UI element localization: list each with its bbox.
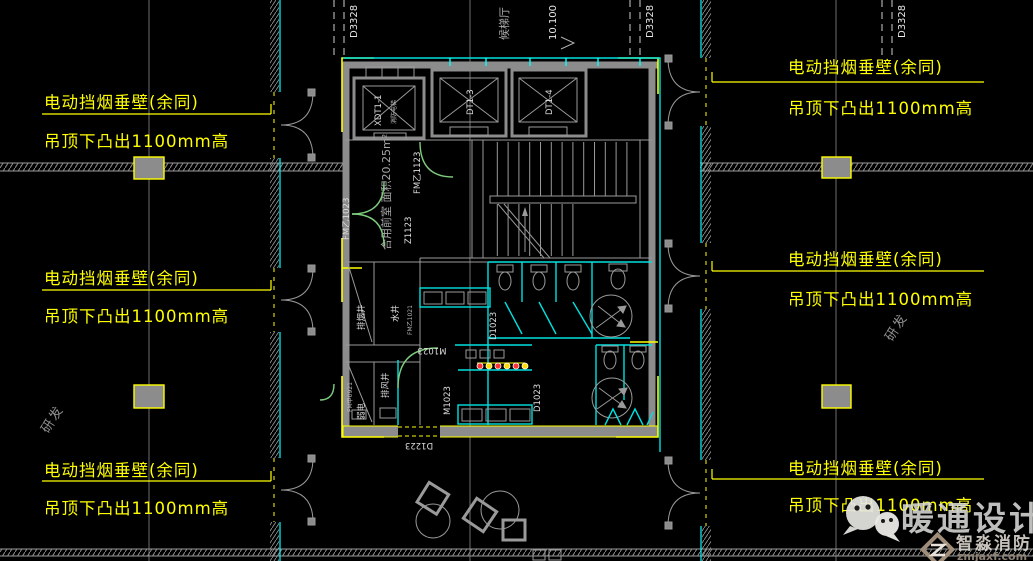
door-tag: FM乙1023 <box>342 198 352 240</box>
grid-lines <box>149 0 836 561</box>
turning-circle <box>590 295 632 337</box>
door-tag: M1023 <box>418 345 447 355</box>
door-tag: D1023 <box>489 312 499 340</box>
room-label-exhaust-shaft: 排风井 <box>380 372 391 398</box>
floor-plan-core: XDT1-1 消防电梯 DT1-3 DT1-4 <box>320 58 660 452</box>
double-door <box>665 55 700 529</box>
annotation-line1: 电动挡烟垂壁(余同) <box>44 269 199 288</box>
door-tag: D1223 <box>405 440 433 450</box>
elevator-shaft: DT1-3 <box>432 70 506 136</box>
brand-logo-diamond <box>923 535 953 561</box>
door-tag: M1023 <box>443 386 453 415</box>
smoke-barrier-annotation: 电动挡烟垂壁(余同) 吊顶下凸出1100mm高 <box>712 58 984 118</box>
column <box>822 385 851 408</box>
column <box>134 157 164 179</box>
annotation-line2: 吊顶下凸出1100mm高 <box>44 499 229 518</box>
smoke-barrier-annotation: 电动挡烟垂壁(余同) 吊顶下凸出1100mm高 <box>42 461 271 518</box>
right-corridor-wall <box>665 0 711 561</box>
elevator-shaft: DT1-4 <box>512 70 586 136</box>
room-label-water-shaft: 水井 <box>390 305 401 322</box>
column <box>134 385 164 408</box>
annotation-line2: 吊顶下凸出1100mm高 <box>44 307 229 326</box>
shared-lobby: 合用前室 面积20.25m² FM乙1023 FM乙1123 Z1123 <box>342 134 472 258</box>
annotation-line2: 吊顶下凸出1100mm高 <box>44 132 229 151</box>
annotation-line1: 电动挡烟垂壁(余同) <box>788 250 943 269</box>
room-label-smoke-shaft: 排烟井 <box>356 304 367 330</box>
service-shafts: 排烟井 水井 FM乙1021 排风井 弱电 FM甲0921 <box>346 258 488 425</box>
room-label-shared-lobby: 合用前室 面积20.25m² <box>379 134 393 250</box>
zone-label-right: 研发 <box>882 310 911 344</box>
elevator-label: DT1-4 <box>545 89 555 115</box>
door-tag: Z1123 <box>404 217 414 244</box>
watermark-brand: 暖通设计 <box>901 499 1033 538</box>
elevator-shaft: XDT1-1 消防电梯 <box>354 78 424 140</box>
door-tag: FM乙1021 <box>407 305 414 335</box>
door-tag: FM乙1123 <box>413 152 423 194</box>
room-label-low-voltage: 弱电 <box>356 402 367 420</box>
elevator-note: 消防电梯 <box>390 100 398 124</box>
door-tag: FM甲0921 <box>347 382 354 412</box>
zone-label-left: 研发 <box>38 402 67 436</box>
watermark-url: zmjaxf.com <box>957 550 1027 561</box>
elevator-label: XDT1-1 <box>374 95 384 126</box>
door-tag-d3328: D3328 <box>645 5 656 38</box>
annotation-line2: 吊顶下凸出1100mm高 <box>788 99 973 118</box>
door-tag-d3328: D3328 <box>349 5 360 38</box>
annotation-line1: 电动挡烟垂壁(余同) <box>788 459 943 478</box>
level-label: 10.100 <box>548 5 559 40</box>
cad-drawing: D3328 D3328 D3328 候梯厅 10.100 <box>0 0 1033 561</box>
annotation-line2: 吊顶下凸出1100mm高 <box>788 290 973 309</box>
cad-floor-plan-screenshot: D3328 D3328 D3328 候梯厅 10.100 <box>0 0 1033 561</box>
level-mark-icon <box>561 37 574 49</box>
top-grid-stubs: D3328 D3328 D3328 候梯厅 10.100 <box>334 0 908 55</box>
annotation-line1: 电动挡烟垂壁(余同) <box>788 58 943 77</box>
smoke-barrier-annotation: 电动挡烟垂壁(余同) 吊顶下凸出1100mm高 <box>42 269 271 326</box>
elevator-label: DT1-3 <box>466 89 476 115</box>
washrooms: D1023 D1023 M1023 M1023 D1223 <box>320 262 653 450</box>
smoke-barrier-annotation: 电动挡烟垂壁(余同) 吊顶下凸出1100mm高 <box>42 93 271 151</box>
annotation-line1: 电动挡烟垂壁(余同) <box>44 93 199 112</box>
door-tag: D1023 <box>533 384 543 412</box>
elevator-hall-label: 候梯厅 <box>497 7 511 40</box>
left-corridor-wall <box>270 0 315 561</box>
annotation-line1: 电动挡烟垂壁(余同) <box>44 461 199 480</box>
column <box>822 157 851 178</box>
smoke-barrier-annotation: 电动挡烟垂壁(余同) 吊顶下凸出1100mm高 <box>712 250 984 309</box>
double-door <box>281 89 315 525</box>
door-tag-d3328: D3328 <box>897 5 908 38</box>
